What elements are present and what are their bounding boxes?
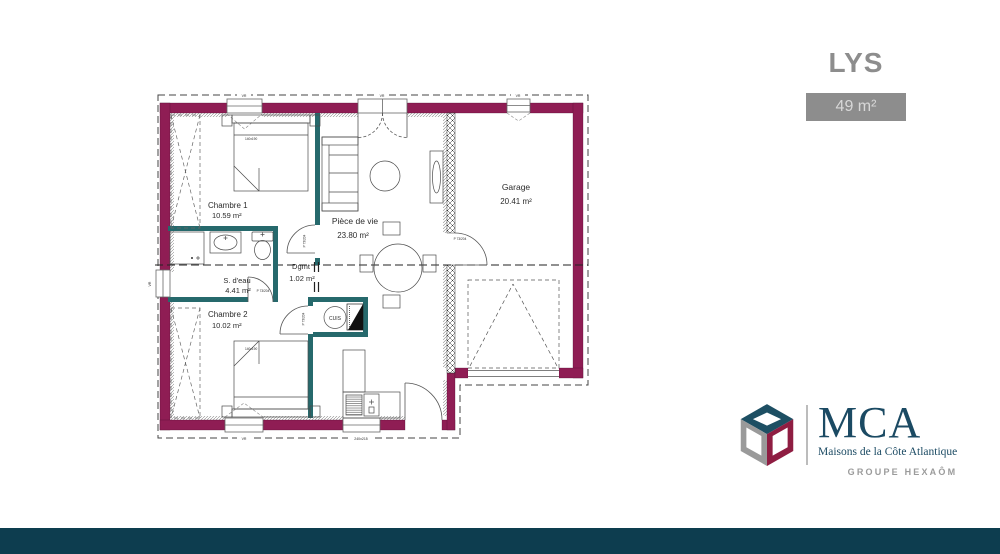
- page: Chambre 1 10.59 m² Pièce de vie 23.80 m²…: [0, 0, 1000, 554]
- door-size-label: P 73/204: [257, 289, 270, 293]
- room-label-chambre1: Chambre 1: [208, 201, 248, 210]
- window-label: VR: [148, 281, 152, 286]
- room-area-chambre2: 10.02 m²: [212, 321, 242, 330]
- room-area-chambre1: 10.59 m²: [212, 211, 242, 220]
- sideboard-icon: [430, 151, 443, 203]
- garage-separation-wall: [447, 113, 455, 373]
- room-area-piece-de-vie: 23.80 m²: [337, 231, 369, 240]
- brand-acronym: MCA: [818, 402, 957, 444]
- room-label-garage: Garage: [502, 182, 531, 192]
- toilet-icon: [252, 232, 273, 260]
- water-heater-icon: [347, 304, 363, 330]
- room-label-dgmt: Dgmt: [292, 262, 311, 271]
- window-label: VR: [242, 437, 247, 441]
- window-label: VR: [380, 94, 385, 98]
- door-size-label: P 73/204: [454, 237, 467, 241]
- window-label: VR: [516, 94, 521, 98]
- bed-size-label: 140x190: [245, 347, 257, 351]
- bed-chambre2-icon: [222, 341, 320, 417]
- room-area-garage: 20.41 m²: [500, 197, 532, 206]
- room-label-chambre2: Chambre 2: [208, 310, 248, 319]
- bed-size-label: 140x190: [245, 137, 257, 141]
- window-label: 240x215: [354, 437, 367, 441]
- rug-icon: [370, 161, 400, 191]
- kitchen-counter-icon: [343, 350, 400, 418]
- footer-bar: [0, 528, 1000, 554]
- floor-plan: Chambre 1 10.59 m² Pièce de vie 23.80 m²…: [145, 88, 617, 450]
- brand-text: MCA Maisons de la Côte Atlantique GROUPE…: [818, 402, 957, 477]
- exterior-walls: [160, 103, 583, 430]
- brand-divider: [806, 405, 808, 465]
- sink-icon: [210, 232, 241, 253]
- room-label-sdeau: S. d'eau: [223, 276, 250, 285]
- kitchen-label: CUIS: [329, 316, 342, 322]
- mca-cube-logo-icon: [737, 402, 797, 468]
- brand-block: MCA Maisons de la Côte Atlantique GROUPE…: [737, 402, 957, 477]
- sofa-icon: [322, 137, 358, 211]
- door-size-label: P 73/204: [303, 234, 307, 247]
- bed-chambre1-icon: [222, 115, 320, 191]
- door-size-label: P 73/204: [302, 312, 306, 325]
- brand-group-name: GROUPE HEXAÔM: [818, 467, 957, 477]
- wardrobe-chambre1-icon: [171, 115, 200, 228]
- wardrobe-chambre2-icon: [171, 308, 200, 418]
- garage-door: [468, 369, 559, 378]
- brand-full-name: Maisons de la Côte Atlantique: [818, 446, 957, 458]
- dgmt-door-marks: [315, 262, 319, 292]
- garage-parking-icon: [468, 280, 559, 368]
- room-area-sdeau: 4.41 m²: [225, 286, 251, 295]
- shower-icon: [170, 232, 204, 264]
- window-label: VR: [242, 94, 247, 98]
- model-name: LYS: [806, 47, 906, 79]
- room-label-piece-de-vie: Pièce de vie: [332, 216, 379, 226]
- area-badge: 49 m²: [806, 93, 906, 121]
- room-area-dgmt: 1.02 m²: [289, 274, 315, 283]
